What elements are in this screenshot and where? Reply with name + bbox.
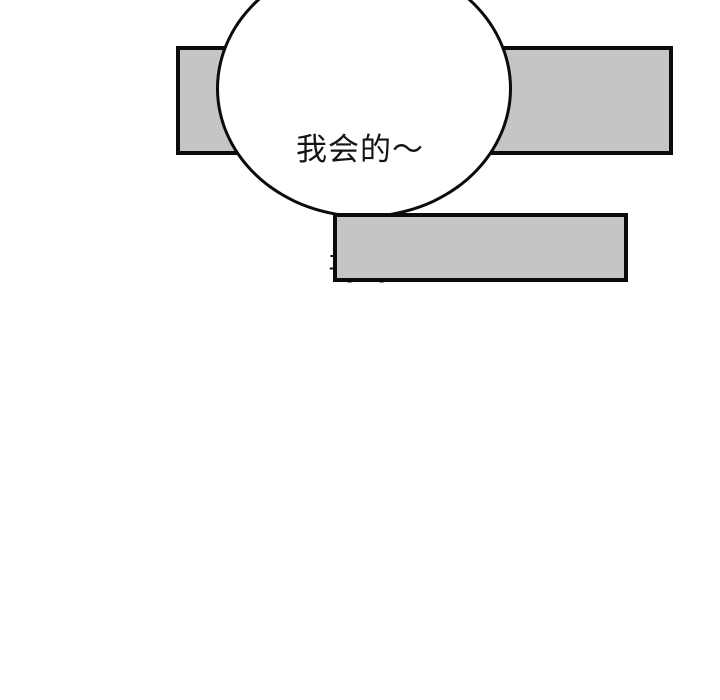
- speech-bubble-text-line1: 我会的～: [0, 130, 720, 170]
- comic-panel: 我会的～ 哥哥: [0, 0, 720, 700]
- censored-panel-bottom: [333, 213, 628, 282]
- speech-bubble-text: 我会的～ 哥哥: [0, 50, 720, 370]
